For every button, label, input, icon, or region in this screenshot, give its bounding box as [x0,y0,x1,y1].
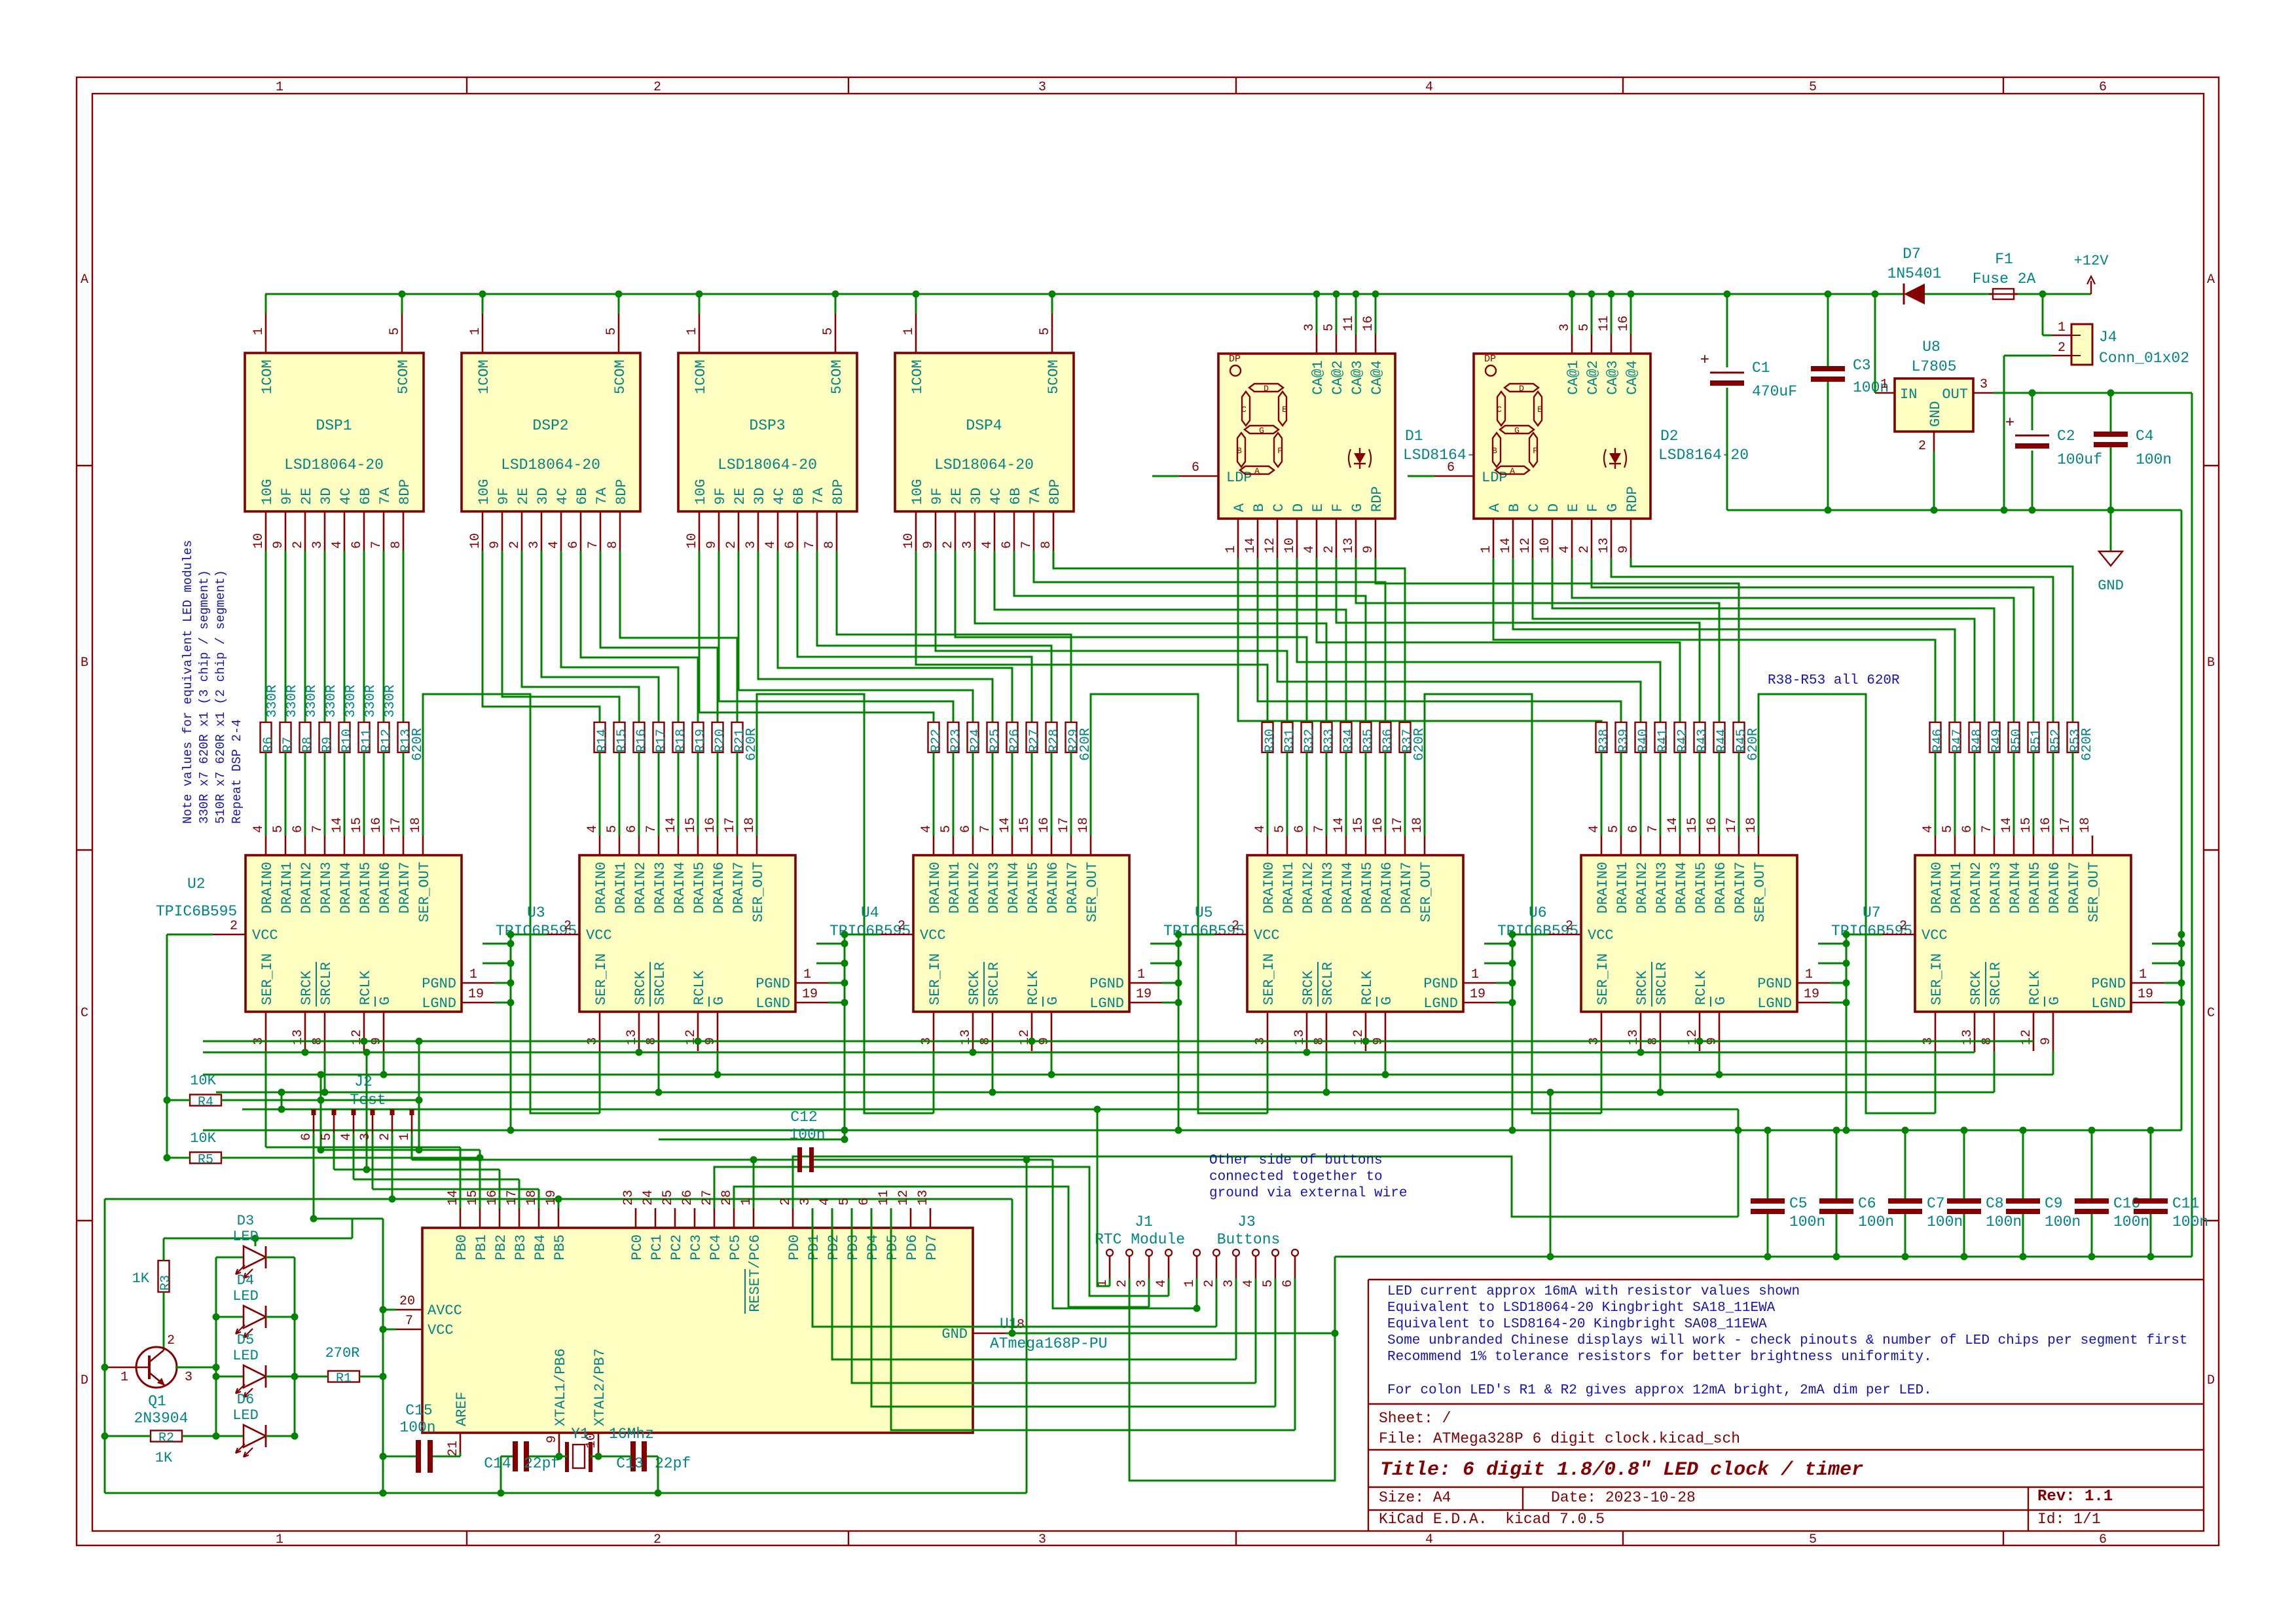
svg-text:18: 18 [742,817,757,833]
svg-text:D: D [1519,384,1524,394]
svg-text:4: 4 [547,541,562,549]
svg-text:10K: 10K [190,1130,216,1147]
svg-text:330R x7 620R x1 (3 chip / segm: 330R x7 620R x1 (3 chip / segment) [197,570,211,824]
svg-text:PC3: PC3 [688,1234,704,1261]
svg-text:DRAIN6: DRAIN6 [2047,862,2063,913]
svg-text:D: D [2207,1373,2215,1388]
svg-text:LSD18064-20: LSD18064-20 [934,456,1034,473]
svg-text:330R: 330R [363,684,378,718]
svg-text:R35: R35 [1361,729,1376,752]
svg-text:C8: C8 [1986,1195,2004,1212]
svg-text:330R: 330R [324,684,339,718]
svg-text:B: B [1506,504,1523,512]
svg-text:1K: 1K [155,1450,173,1466]
svg-text:330R: 330R [304,684,319,718]
svg-text:DRAIN3: DRAIN3 [652,862,668,913]
svg-text:3: 3 [1038,1532,1046,1547]
svg-text:SER_IN: SER_IN [927,953,943,1005]
svg-text:14: 14 [1243,538,1258,553]
svg-text:DRAIN5: DRAIN5 [1359,862,1376,913]
svg-text:17: 17 [1391,817,1406,833]
svg-text:8: 8 [1039,541,1054,549]
svg-text:330R: 330R [265,684,280,718]
svg-text:Some unbranded Chinese display: Some unbranded Chinese displays will wor… [1387,1333,2187,1348]
svg-text:17: 17 [505,1190,520,1206]
svg-text:6: 6 [1281,1280,1296,1287]
svg-text:19: 19 [802,987,818,1002]
svg-text:SRCLR: SRCLR [1320,962,1336,1005]
svg-text:8DP: 8DP [397,479,413,505]
svg-text:470uF: 470uF [1752,383,1797,400]
svg-text:8: 8 [606,541,621,549]
svg-text:16: 16 [2039,817,2054,833]
svg-text:E: E [1565,504,1582,512]
svg-text:G: G [377,997,393,1005]
svg-text:Note values for equivalent LED: Note values for equivalent LED modules [181,540,195,824]
svg-text:23: 23 [621,1190,636,1206]
svg-text:D5: D5 [237,1332,254,1348]
svg-text:SER_OUT: SER_OUT [2086,862,2102,922]
svg-text:DRAIN1: DRAIN1 [1614,862,1631,913]
svg-text:DRAIN0: DRAIN0 [259,862,276,913]
svg-text:18: 18 [1744,817,1759,833]
svg-text:RCLK: RCLK [2027,970,2043,1005]
svg-text:14: 14 [1999,817,2014,833]
svg-text:DRAIN2: DRAIN2 [632,862,649,913]
svg-text:270R: 270R [325,1345,360,1361]
svg-text:DRAIN7: DRAIN7 [1065,862,1081,913]
svg-text:RCLK: RCLK [1693,970,1709,1005]
svg-text:C: C [1526,504,1542,512]
svg-text:17: 17 [389,817,404,833]
svg-text:1: 1 [1137,967,1145,982]
svg-text:4: 4 [818,1198,833,1206]
svg-text:5: 5 [271,825,286,833]
svg-text:14: 14 [1332,817,1347,833]
svg-text:LDP: LDP [1482,470,1508,486]
svg-text:DRAIN7: DRAIN7 [2066,862,2083,913]
svg-text:LSD18064-20: LSD18064-20 [501,456,600,473]
svg-text:3: 3 [185,1370,192,1385]
svg-text:7: 7 [978,825,993,833]
svg-text:PC2: PC2 [668,1234,685,1261]
svg-text:2: 2 [1577,545,1592,553]
svg-text:D7: D7 [1903,246,1921,263]
svg-text:DRAIN4: DRAIN4 [1673,862,1690,913]
svg-text:SRCK: SRCK [966,970,983,1005]
svg-text:VCC: VCC [428,1322,454,1338]
svg-text:2: 2 [1231,919,1239,934]
svg-text:25: 25 [661,1190,676,1206]
svg-text:PB3: PB3 [513,1234,529,1261]
svg-text:PC0: PC0 [629,1234,646,1261]
svg-text:RCLK: RCLK [1025,970,1042,1005]
svg-text:U2: U2 [187,876,206,893]
svg-text:2: 2 [653,80,661,95]
svg-text:R22: R22 [929,729,944,752]
svg-text:DRAIN3: DRAIN3 [1654,862,1670,913]
svg-text:R25: R25 [988,729,1003,752]
svg-text:D: D [81,1373,88,1388]
svg-text:2: 2 [724,541,739,549]
svg-text:100n: 100n [399,1419,435,1436]
svg-text:IN: IN [1900,386,1917,403]
svg-text:For colon LED's R1 & R2 gives: For colon LED's R1 & R2 gives approx 12m… [1387,1383,1932,1398]
svg-text:G: G [1259,426,1264,435]
svg-text:DRAIN1: DRAIN1 [613,862,629,913]
svg-text:C2: C2 [2057,428,2075,445]
svg-text:R24: R24 [968,729,983,752]
svg-text:19: 19 [2138,987,2153,1002]
svg-text:1: 1 [902,327,917,335]
svg-text:XTAL2/PB7: XTAL2/PB7 [592,1348,608,1426]
svg-text:PGND: PGND [422,976,456,992]
svg-text:1: 1 [739,1198,754,1206]
svg-text:SER_OUT: SER_OUT [1084,862,1101,922]
svg-text:PC4: PC4 [708,1234,724,1261]
svg-text:DRAIN4: DRAIN4 [2007,862,2024,913]
svg-text:2: 2 [507,541,522,549]
svg-text:9: 9 [271,541,286,549]
svg-text:DP: DP [1229,354,1241,365]
svg-text:E: E [1310,504,1326,512]
svg-text:PB0: PB0 [454,1234,470,1261]
svg-text:18: 18 [2078,817,2093,833]
svg-text:12: 12 [2019,1029,2034,1045]
svg-text:3: 3 [1038,80,1046,95]
svg-text:100uf: 100uf [2057,451,2102,468]
svg-text:6B: 6B [574,488,591,505]
svg-text:1COM: 1COM [909,360,926,394]
svg-text:+12V: +12V [2074,253,2109,269]
svg-text:SER_OUT: SER_OUT [750,862,767,922]
svg-text:SER_OUT: SER_OUT [1752,862,1768,922]
svg-text:DRAIN4: DRAIN4 [672,862,688,913]
svg-text:10G: 10G [476,479,492,505]
svg-text:22pf: 22pf [524,1455,560,1472]
svg-text:DRAIN3: DRAIN3 [1320,862,1336,913]
svg-text:R32: R32 [1302,729,1317,752]
svg-text:4: 4 [1921,825,1936,833]
svg-text:14: 14 [446,1190,461,1206]
svg-text:PGND: PGND [2091,976,2126,992]
svg-text:PB1: PB1 [473,1234,490,1261]
svg-text:A: A [1487,503,1503,512]
svg-text:19: 19 [1804,987,1819,1002]
svg-text:13: 13 [1626,1029,1641,1045]
svg-text:330R: 330R [383,684,398,718]
svg-text:15: 15 [1685,817,1700,833]
svg-text:15: 15 [1351,817,1366,833]
svg-text:PGND: PGND [1423,976,1458,992]
svg-text:GND: GND [941,1326,968,1342]
svg-text:C4: C4 [2136,428,2154,445]
svg-text:ground via external wire: ground via external wire [1209,1186,1407,1201]
svg-text:J2: J2 [354,1073,373,1090]
svg-text:PD7: PD7 [924,1234,940,1261]
svg-text:19: 19 [1470,987,1485,1002]
svg-text:J4: J4 [2099,329,2117,346]
svg-text:8: 8 [389,541,404,549]
svg-text:2: 2 [941,541,956,549]
svg-text:7: 7 [310,825,325,833]
svg-text:5: 5 [1038,327,1053,335]
svg-text:LSD18064-20: LSD18064-20 [718,456,817,473]
svg-text:A: A [1254,466,1260,476]
svg-text:8DP: 8DP [830,479,847,505]
svg-text:R33: R33 [1322,729,1337,752]
svg-text:2: 2 [291,541,306,549]
svg-text:620R: 620R [2080,728,2095,761]
svg-text:LED: LED [232,1288,259,1304]
svg-text:DRAIN5: DRAIN5 [357,862,374,913]
svg-text:D6: D6 [237,1392,254,1408]
svg-text:DRAIN6: DRAIN6 [711,862,727,913]
svg-text:6: 6 [2099,1532,2107,1547]
svg-text:100n: 100n [1927,1213,1963,1230]
svg-text:DRAIN7: DRAIN7 [1732,862,1749,913]
svg-text:7: 7 [405,1314,413,1329]
svg-text:3: 3 [960,541,975,549]
svg-text:R20: R20 [713,729,728,752]
svg-text:VCC: VCC [1254,927,1280,944]
svg-text:2: 2 [898,919,905,934]
svg-text:10: 10 [1283,538,1298,553]
svg-text:GND: GND [1927,401,1944,427]
svg-text:TPIC6B595: TPIC6B595 [156,903,237,920]
svg-text:B: B [2207,655,2215,671]
svg-text:R26: R26 [1008,729,1023,752]
svg-text:4: 4 [585,825,600,833]
svg-text:R40: R40 [1636,729,1651,752]
svg-text:+: + [2005,415,2014,432]
svg-text:R47: R47 [1950,729,1965,752]
svg-text:4: 4 [1253,825,1268,833]
svg-text:PD0: PD0 [786,1234,803,1261]
svg-text:PD1: PD1 [806,1234,822,1261]
svg-text:A: A [81,272,88,287]
svg-text:LDP: LDP [1226,470,1252,486]
svg-text:19: 19 [1136,987,1152,1002]
svg-text:PD5: PD5 [884,1234,901,1261]
svg-text:PC1: PC1 [649,1234,665,1261]
svg-text:LED: LED [232,1407,259,1424]
svg-text:3: 3 [527,541,542,549]
svg-text:6: 6 [350,541,365,549]
svg-text:100n: 100n [1789,1213,1825,1230]
svg-text:17: 17 [2058,817,2073,833]
svg-text:SER_IN: SER_IN [1595,953,1611,1005]
svg-text:LED: LED [232,1348,259,1364]
svg-text:SRCK: SRCK [299,970,315,1005]
svg-text:DRAIN0: DRAIN0 [1929,862,1945,913]
svg-text:5: 5 [1577,323,1592,331]
svg-text:6B: 6B [1008,488,1024,505]
svg-text:R14: R14 [595,729,610,752]
svg-text:Fuse 2A: Fuse 2A [1973,270,2036,287]
svg-text:9: 9 [704,541,720,549]
svg-text:17: 17 [723,817,738,833]
svg-text:7: 7 [586,541,601,549]
svg-text:5: 5 [1941,825,1956,833]
svg-text:Repeat DSP 2-4: Repeat DSP 2-4 [230,719,244,824]
svg-text:DRAIN0: DRAIN0 [1595,862,1611,913]
svg-text:R44: R44 [1715,729,1730,752]
svg-text:DRAIN6: DRAIN6 [1379,862,1395,913]
svg-text:J1: J1 [1135,1213,1153,1230]
svg-text:LGND: LGND [1089,995,1124,1012]
svg-text:LGND: LGND [422,995,456,1012]
svg-text:2: 2 [1322,545,1337,553]
svg-text:AREF: AREF [454,1392,470,1426]
svg-text:PGND: PGND [1757,976,1792,992]
svg-text:2E: 2E [299,488,315,505]
svg-text:D3: D3 [237,1213,254,1229]
svg-text:Other side of buttons: Other side of buttons [1209,1153,1383,1168]
svg-text:PB5: PB5 [552,1234,568,1261]
svg-text:connected together to: connected together to [1209,1170,1383,1185]
svg-text:PGND: PGND [756,976,790,992]
svg-text:DRAIN0: DRAIN0 [593,862,610,913]
svg-text:2E: 2E [949,488,965,505]
svg-text:2N3904: 2N3904 [134,1410,189,1427]
svg-text:C: C [81,1006,88,1021]
svg-text:5: 5 [605,825,620,833]
svg-text:R43: R43 [1695,729,1710,752]
svg-text:16Mhz: 16Mhz [609,1426,654,1443]
svg-text:9: 9 [1616,545,1631,553]
svg-text:DRAIN1: DRAIN1 [279,862,295,913]
svg-text:DRAIN4: DRAIN4 [338,862,354,913]
svg-text:R31: R31 [1283,729,1298,752]
svg-text:16: 16 [485,1190,500,1206]
svg-text:1K: 1K [132,1270,150,1287]
svg-text:13: 13 [916,1190,931,1206]
svg-text:Q1: Q1 [148,1393,166,1410]
svg-text:2: 2 [167,1333,175,1348]
svg-text:DRAIN4: DRAIN4 [1339,862,1356,913]
svg-text:8: 8 [1017,1318,1025,1333]
svg-text:11: 11 [1341,316,1357,331]
svg-text:DRAIN2: DRAIN2 [966,862,983,913]
svg-text:G: G [1605,504,1621,512]
svg-text:7: 7 [803,541,818,549]
svg-text:16: 16 [1616,316,1631,331]
svg-text:1: 1 [1805,967,1813,982]
svg-text:R41: R41 [1656,729,1671,752]
svg-text:6: 6 [783,541,798,549]
svg-text:File: ATMega328P 6 digit clock: File: ATMega328P 6 digit clock.kicad_sch [1379,1430,1740,1447]
svg-text:22pf: 22pf [655,1455,691,1472]
svg-text:10: 10 [902,533,917,549]
svg-text:RDP: RDP [1369,486,1385,512]
svg-text:5: 5 [1607,825,1622,833]
svg-text:C9: C9 [2045,1195,2063,1212]
svg-text:5COM: 5COM [612,360,629,394]
svg-text:KiCad E.D.A. kicad 7.0.5: KiCad E.D.A. kicad 7.0.5 [1379,1511,1605,1528]
svg-text:R3: R3 [158,1275,173,1291]
svg-text:DRAIN1: DRAIN1 [947,862,963,913]
svg-text:4C: 4C [555,488,571,505]
svg-text:7A: 7A [377,487,393,505]
svg-text:L7805: L7805 [1911,358,1956,375]
svg-text:SRCK: SRCK [1300,970,1317,1005]
svg-text:4: 4 [251,825,266,833]
svg-text:DP: DP [1484,354,1496,365]
svg-text:18: 18 [524,1190,539,1206]
svg-text:B: B [1251,504,1267,512]
svg-text:R2: R2 [158,1431,174,1446]
svg-text:LGND: LGND [756,995,790,1012]
svg-text:Size: A4: Size: A4 [1379,1489,1451,1506]
svg-text:20: 20 [399,1294,415,1309]
svg-text:LED current approx 16mA with r: LED current approx 16mA with resistor va… [1387,1284,1800,1299]
svg-text:SER_IN: SER_IN [1929,953,1945,1005]
svg-text:SER_IN: SER_IN [259,953,276,1005]
svg-text:R1: R1 [336,1371,352,1386]
svg-text:Sheet: /: Sheet: / [1379,1410,1451,1427]
svg-text:2: 2 [230,919,238,934]
svg-text:DRAIN7: DRAIN7 [731,862,747,913]
svg-text:C6: C6 [1858,1195,1876,1212]
svg-text:5: 5 [821,327,836,335]
svg-text:6: 6 [625,825,640,833]
svg-text:CA@3: CA@3 [1349,360,1366,395]
svg-text:R17: R17 [654,729,669,752]
svg-text:5: 5 [1809,1532,1817,1547]
svg-text:DRAIN5: DRAIN5 [1025,862,1042,913]
svg-text:E: E [1537,405,1542,415]
svg-text:R36: R36 [1381,729,1396,752]
svg-text:DRAIN2: DRAIN2 [299,862,315,913]
svg-text:5: 5 [604,327,619,335]
svg-text:100n: 100n [2045,1213,2081,1230]
svg-text:DSP4: DSP4 [966,417,1002,434]
svg-text:5COM: 5COM [1046,360,1062,394]
svg-text:R4: R4 [198,1095,213,1110]
svg-text:3: 3 [744,541,759,549]
svg-text:1: 1 [120,1370,128,1385]
svg-text:18: 18 [1410,817,1425,833]
svg-text:LGND: LGND [1423,995,1458,1012]
svg-text:1: 1 [1471,967,1479,982]
svg-text:4C: 4C [988,488,1004,505]
svg-text:2: 2 [564,919,572,934]
svg-text:C: C [2207,1006,2215,1021]
svg-text:9: 9 [545,1435,560,1443]
svg-text:DRAIN1: DRAIN1 [1948,862,1965,913]
svg-text:Title: 6 digit 1.8/0.8" LED cl: Title: 6 digit 1.8/0.8" LED clock / time… [1380,1459,1863,1481]
svg-text:16: 16 [1361,316,1376,331]
svg-text:R10: R10 [340,729,355,752]
svg-text:1: 1 [251,327,266,335]
svg-text:U1: U1 [1000,1316,1018,1333]
svg-text:6: 6 [958,825,974,833]
svg-text:4: 4 [1558,545,1573,553]
svg-text:5: 5 [939,825,954,833]
svg-text:R39: R39 [1616,729,1631,752]
svg-text:10G: 10G [909,479,926,505]
svg-text:DRAIN7: DRAIN7 [1398,862,1415,913]
svg-text:27: 27 [700,1190,715,1206]
svg-text:1: 1 [2058,320,2066,335]
svg-text:15: 15 [683,817,699,833]
svg-text:Date: 2023-10-28: Date: 2023-10-28 [1551,1489,1696,1506]
svg-text:D4: D4 [237,1272,254,1289]
svg-text:PD3: PD3 [845,1234,862,1261]
svg-text:A: A [2207,272,2215,287]
svg-text:7: 7 [1019,541,1034,549]
